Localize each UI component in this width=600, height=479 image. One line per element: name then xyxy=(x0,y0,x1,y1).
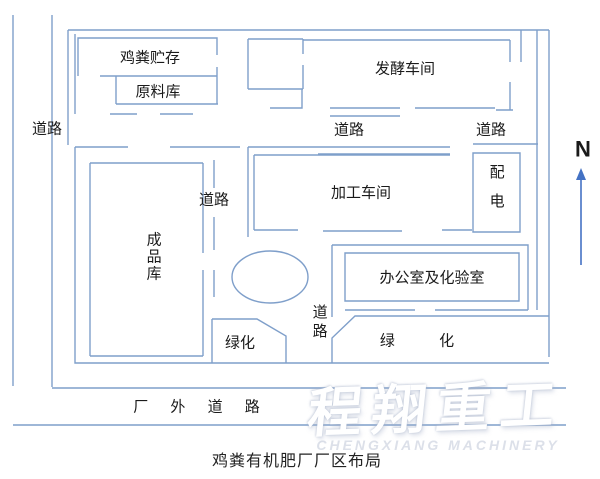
area-label-fermentation: 发酵车间 xyxy=(375,60,435,77)
area-label-raw-material: 原料库 xyxy=(135,83,180,100)
road-label-mid-left: 道路 xyxy=(199,191,229,208)
factory-layout-diagram: 鸡粪贮存 原料库 发酵车间 道路 道路 道路 道路 道路 加工车间 配电 成品库… xyxy=(0,0,600,479)
road-label-mid-vertical: 道路 xyxy=(310,304,327,342)
area-label-green-right: 绿 化 xyxy=(380,332,474,349)
diagram-caption: 鸡粪有机肥厂厂区布局 xyxy=(212,447,382,471)
road-line-middle xyxy=(248,147,450,154)
fermentation-bottom-dashes xyxy=(330,108,513,116)
fermentation-side-ell xyxy=(270,89,302,108)
processing-bottom-dashes xyxy=(254,230,472,231)
outside-road-label: 厂 外 道 路 xyxy=(133,398,269,415)
road-label-left: 道路 xyxy=(32,120,62,137)
road-label-top-right: 道路 xyxy=(476,121,506,138)
road-label-top-middle: 道路 xyxy=(334,121,364,138)
area-label-processing: 加工车间 xyxy=(331,184,391,201)
fermentation-side-box xyxy=(248,39,303,89)
north-label: N xyxy=(575,136,591,161)
area-label-power: 配电 xyxy=(487,164,504,222)
watermark-text: 程翔重工 xyxy=(304,360,569,448)
area-label-green-left: 绿化 xyxy=(225,334,255,351)
area-label-office-lab: 办公室及化验室 xyxy=(379,269,484,286)
north-arrow-head xyxy=(576,168,586,180)
turning-circle xyxy=(232,251,308,303)
area-label-manure-storage: 鸡粪贮存 xyxy=(120,49,180,66)
area-label-finished-goods: 成品库 xyxy=(144,232,161,283)
